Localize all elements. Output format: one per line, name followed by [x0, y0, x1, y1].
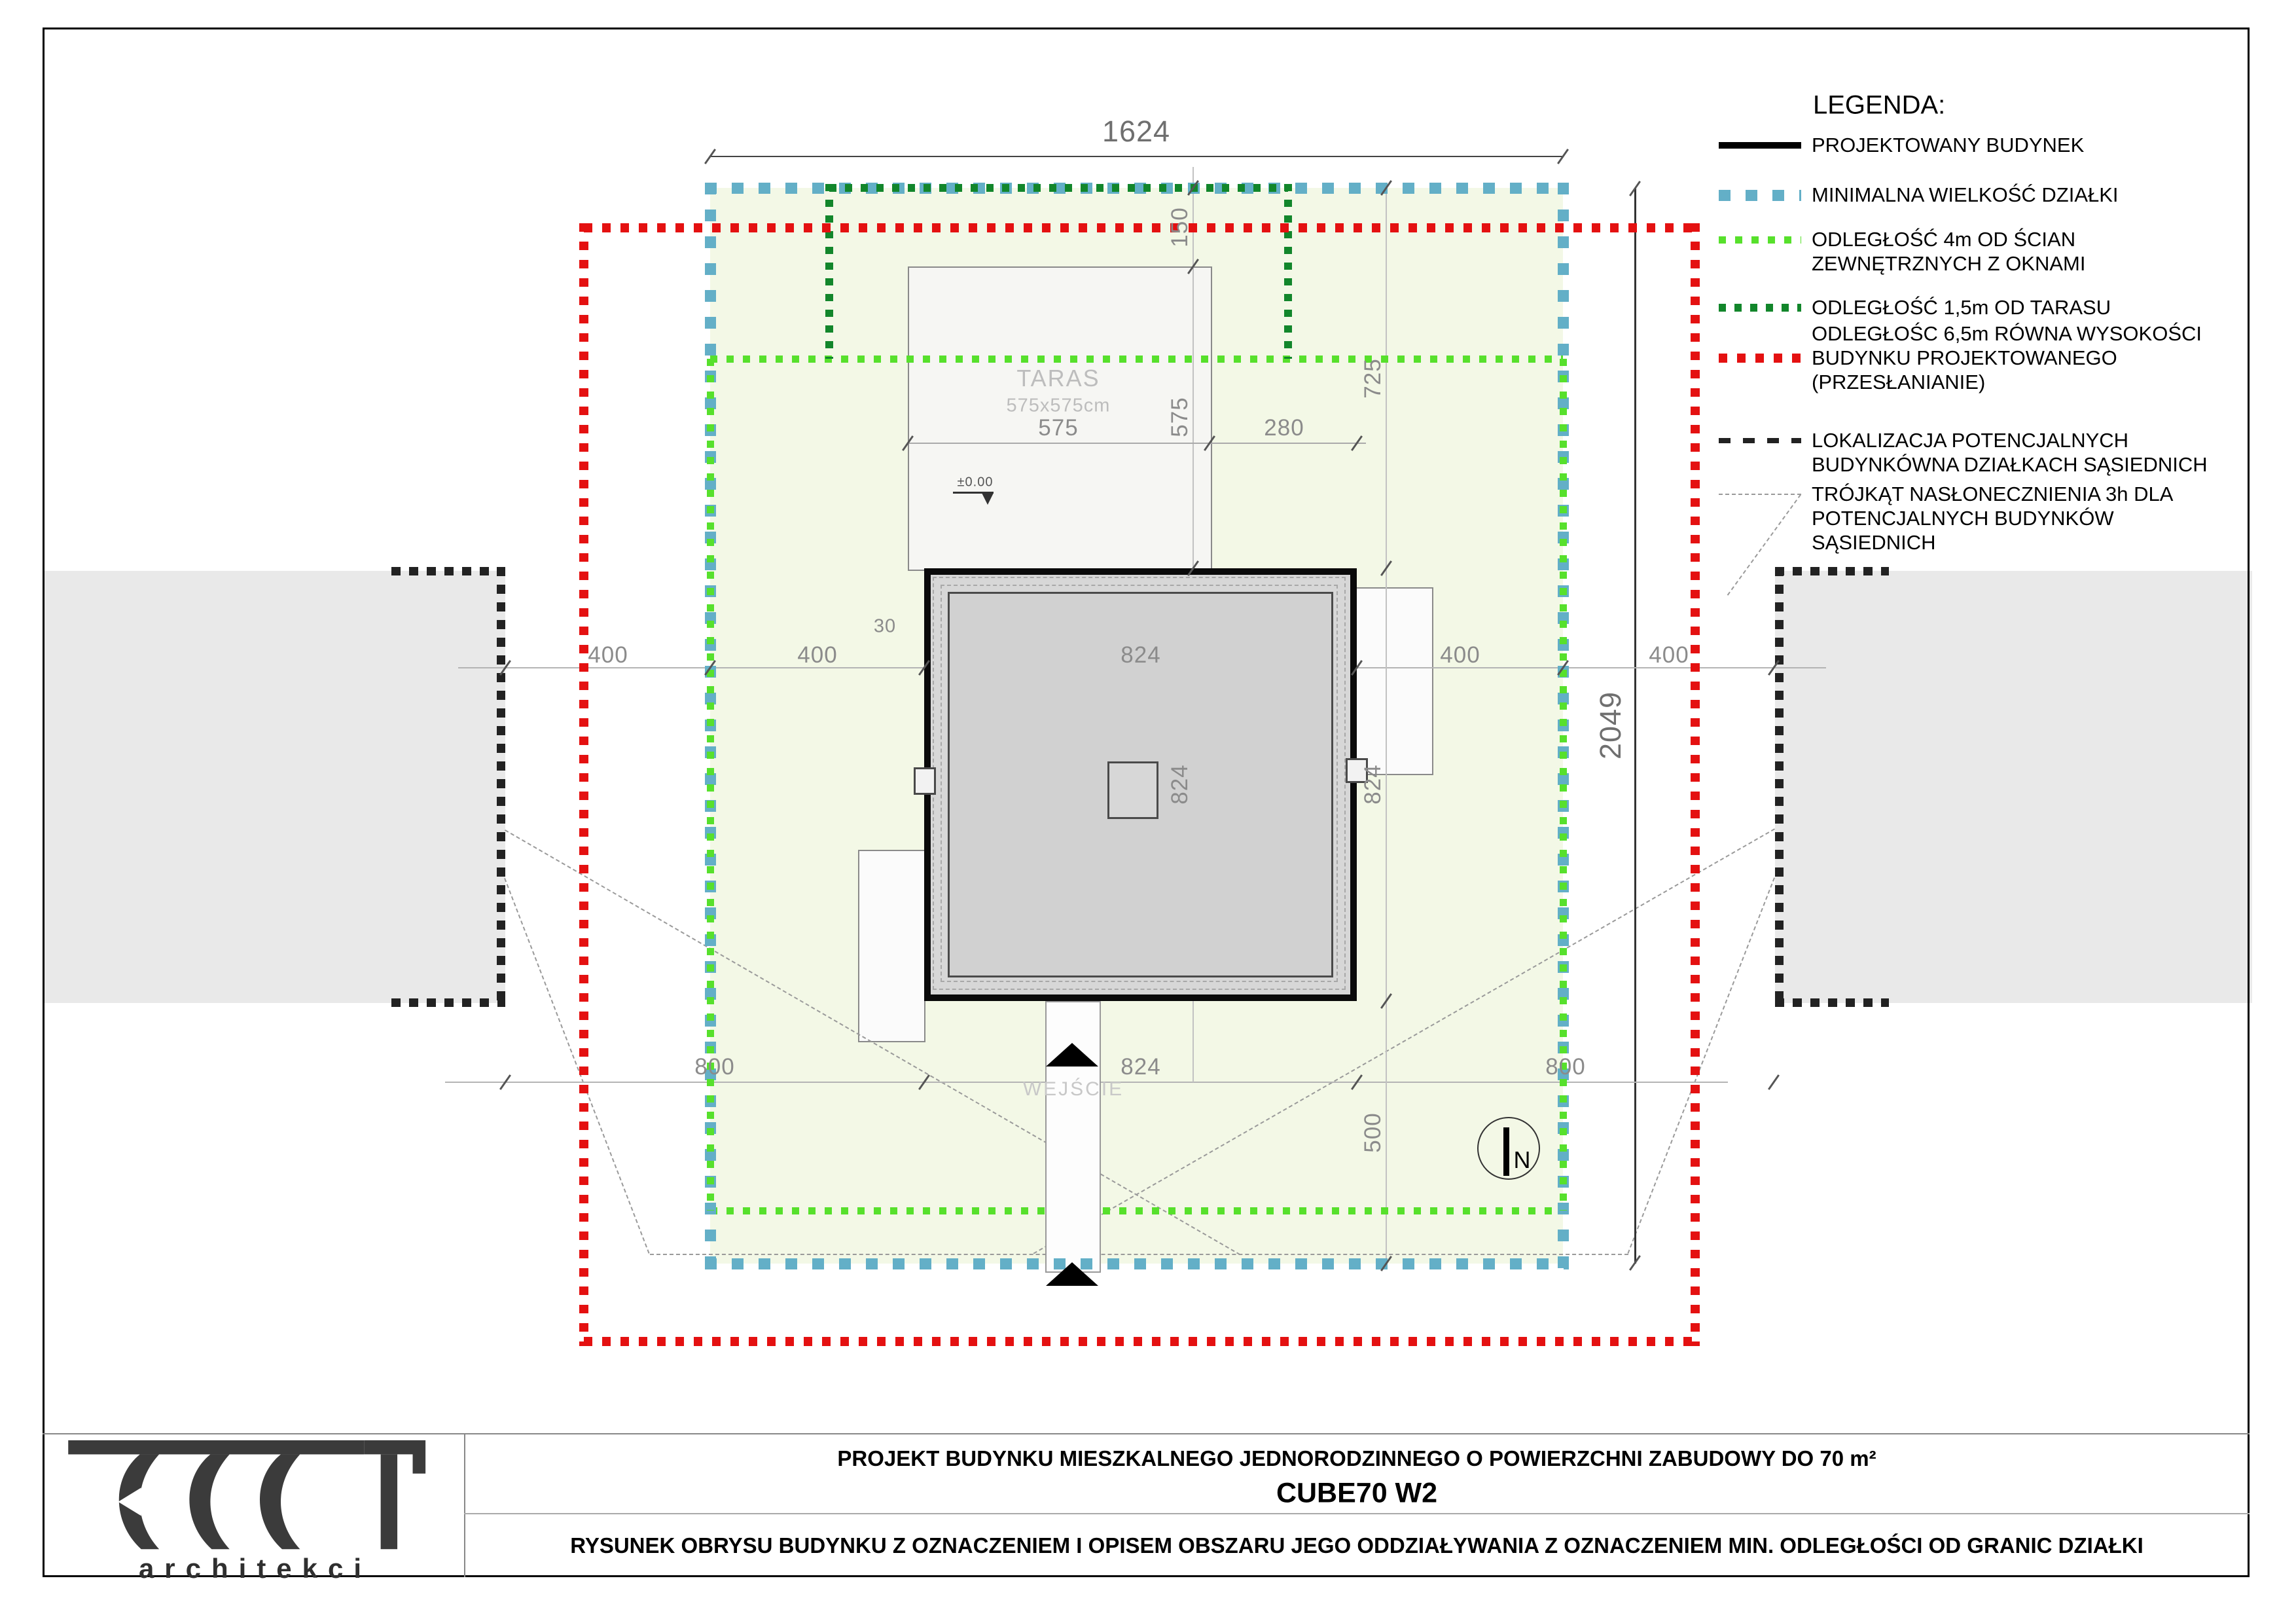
title-block-logo-divider	[464, 1433, 465, 1577]
page-frame	[43, 27, 2250, 1577]
logo-subtext: architekci	[111, 1553, 399, 1584]
drawing-title: RYSUNEK OBRYSU BUDYNKU Z OZNACZENIEM I O…	[570, 1533, 2144, 1558]
project-model: CUBE70 W2	[1276, 1478, 1437, 1510]
site-plan-page: WEJŚCIE ±0.00 N 1624 2049 400 400 30 824…	[0, 0, 2296, 1623]
project-title: PROJEKT BUDYNKU MIESZKALNEGO JEDNORODZIN…	[837, 1446, 1876, 1471]
title-block-row-divider	[464, 1513, 2250, 1514]
root-architekci-logo	[62, 1438, 442, 1556]
title-block-top-line	[43, 1433, 2250, 1434]
